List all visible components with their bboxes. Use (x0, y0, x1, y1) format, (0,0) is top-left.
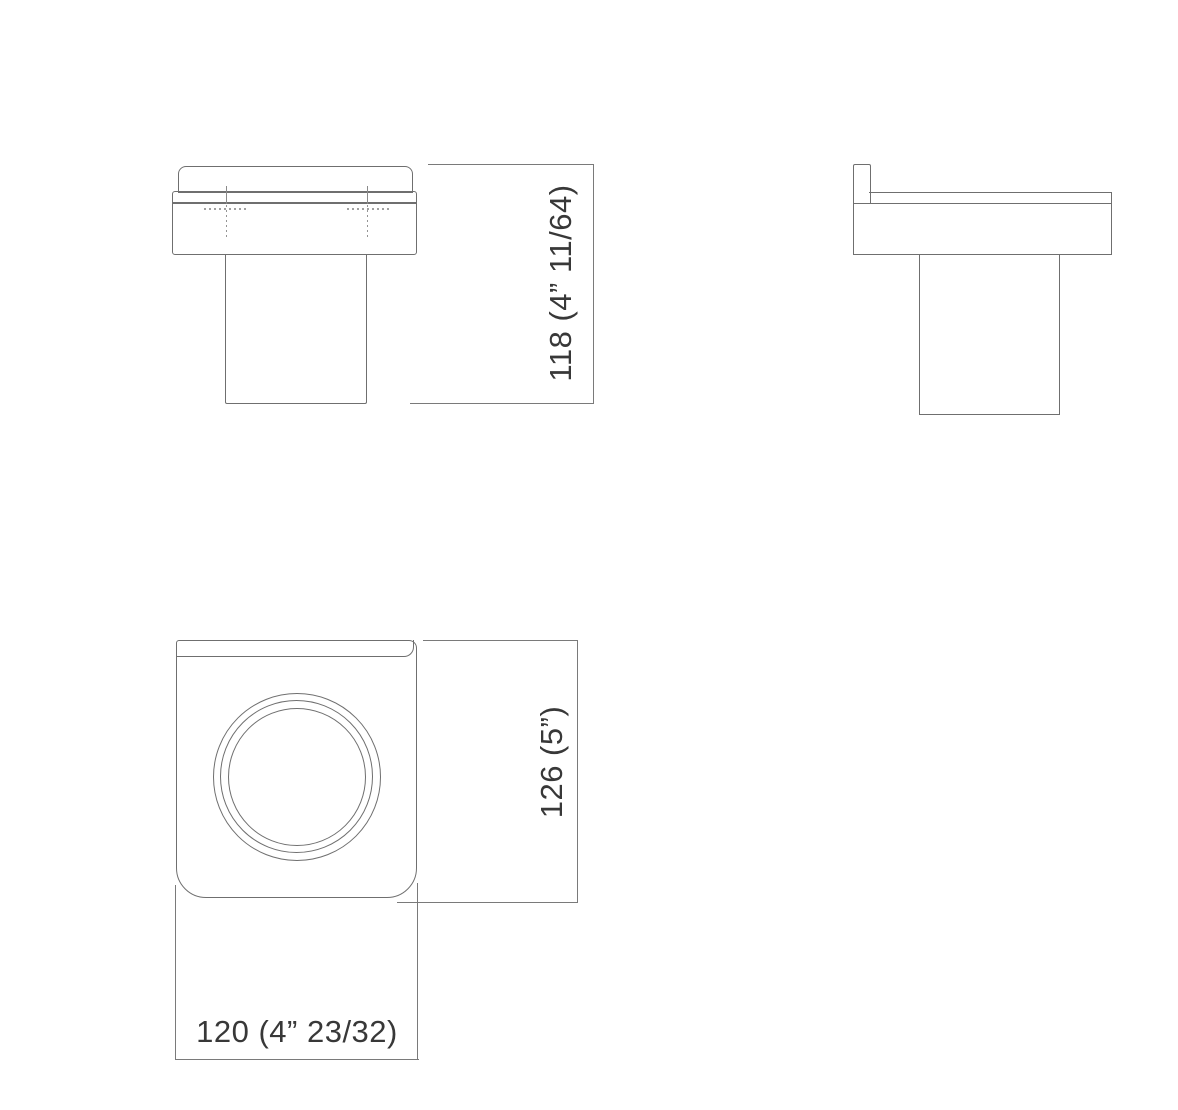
plan-width-dimension-line (175, 1059, 419, 1060)
front-view-lid (178, 166, 413, 193)
front-height-dimension-line (593, 164, 594, 404)
side-view-body (853, 203, 1112, 255)
plan-width-dimension-label: 120 (4” 23/32) (147, 1012, 447, 1052)
front-view-right-centerline-tick (367, 186, 369, 204)
technical-drawing-canvas: 118 (4” 11/64) 126 (5”) 120 (4” 23/32) (0, 0, 1178, 1110)
front-height-dimension-label: 118 (4” 11/64) (541, 133, 581, 433)
front-view-body (172, 191, 417, 255)
front-view-left-hidden-centerline-vertical (226, 205, 228, 239)
plan-height-dimension-label: 126 (5”) (532, 612, 572, 912)
plan-view-drain-circle-inner (228, 708, 366, 846)
front-view-right-hidden-centerline-horizontal (347, 208, 391, 210)
front-view-right-hidden-centerline-vertical (367, 205, 369, 239)
side-view-outlet-stem (919, 255, 1060, 415)
plan-height-dimension-line (577, 640, 578, 903)
front-view-left-centerline-tick (226, 186, 228, 204)
front-view-outlet-stem (225, 255, 367, 404)
front-view-left-hidden-centerline-horizontal (204, 208, 248, 210)
plan-view-back-edge-line (177, 640, 414, 657)
front-view-body-edge-line (173, 202, 416, 204)
